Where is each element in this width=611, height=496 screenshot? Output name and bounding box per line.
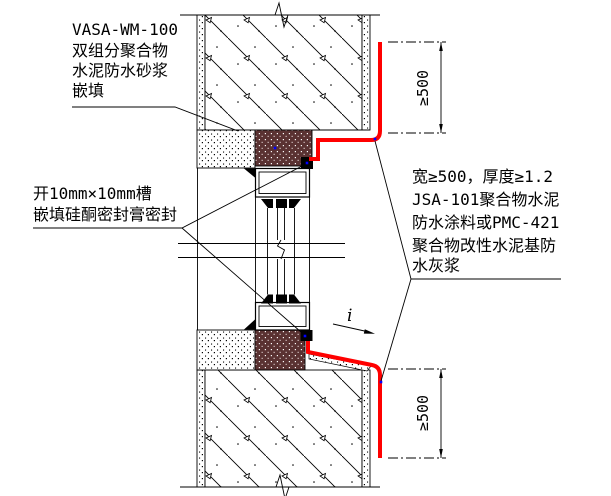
coating-note-line5: 水灰浆	[412, 256, 460, 275]
slope-arrow-icon	[364, 329, 375, 334]
frame-head-profile	[256, 169, 310, 198]
dimension-bottom: ≥500	[388, 369, 446, 458]
sill-waterproof-mortar	[197, 330, 255, 370]
coating-annotation: 宽≥500，厚度≥1.2 JSA-101聚合物水泥 防水涂料或PMC-421 聚…	[375, 141, 561, 381]
dim-top-value: ≥500	[414, 70, 432, 106]
groove-note-line2: 嵌填硅酮密封膏密封	[33, 205, 177, 224]
dim-bottom-arrow-up-icon	[439, 369, 443, 378]
upper-wall-exterior-render	[362, 15, 370, 130]
head-note-line1: VASA-WM-100	[72, 20, 178, 39]
node-marker	[274, 147, 277, 150]
sill-silicone-groove	[301, 330, 313, 341]
coating-leader-top	[375, 141, 561, 279]
sash-stop-top-right	[289, 199, 301, 208]
dimension-top: ≥500	[388, 42, 446, 133]
sash-stop-top-left	[261, 199, 273, 208]
node-marker	[306, 162, 309, 165]
sash-stop-bottom-right	[289, 295, 301, 304]
coating-note-line4: 聚合物改性水泥基防	[412, 236, 556, 255]
node-marker	[374, 138, 377, 141]
lower-wall-concrete	[205, 370, 362, 487]
dim-top-arrow-down-icon	[439, 124, 443, 133]
head-sealant-fillet	[244, 169, 256, 179]
dim-bottom-arrow-down-icon	[439, 449, 443, 458]
coating-note-line2: JSA-101聚合物水泥	[412, 190, 559, 209]
upper-wall-concrete	[205, 15, 362, 130]
head-waterproof-mortar	[197, 130, 255, 168]
node-marker	[304, 335, 307, 338]
dim-top-arrow-up-icon	[439, 42, 443, 51]
lower-wall-exterior-render	[362, 370, 370, 487]
glazing-gasket-top	[276, 199, 287, 208]
glass-break-symbol	[278, 240, 285, 259]
drawing-canvas: ≥500 ≥500 VASA-WM-100 双组分聚合物 水泥防水砂浆 嵌填 开…	[0, 0, 611, 496]
groove-note-line1: 开10mm×10mm槽	[33, 184, 152, 203]
slope-label: i	[347, 306, 352, 326]
upper-wall	[180, 3, 380, 130]
slope-indicator: i	[333, 306, 375, 334]
glazing-gasket-bottom	[276, 295, 287, 304]
window-waterproofing-detail-drawing: ≥500 ≥500 VASA-WM-100 双组分聚合物 水泥防水砂浆 嵌填 开…	[0, 0, 611, 496]
lower-wall-interior-plaster	[197, 370, 205, 487]
sill-sealant-mortar	[255, 330, 305, 370]
head-note-line4: 嵌填	[72, 81, 104, 100]
node-marker	[380, 381, 383, 384]
coating-note-line3: 防水涂料或PMC-421	[412, 213, 559, 232]
sill-sealant-fillet	[244, 319, 256, 330]
head-note-line3: 水泥防水砂浆	[72, 61, 168, 80]
head-note-line2: 双组分聚合物	[72, 41, 168, 60]
dim-bottom-value: ≥500	[414, 395, 432, 431]
window-section	[178, 168, 345, 330]
lower-wall	[180, 370, 380, 496]
coating-leader-bottom	[381, 279, 411, 381]
coating-note-line1: 宽≥500，厚度≥1.2	[412, 167, 553, 186]
upper-wall-interior-plaster	[197, 15, 205, 130]
